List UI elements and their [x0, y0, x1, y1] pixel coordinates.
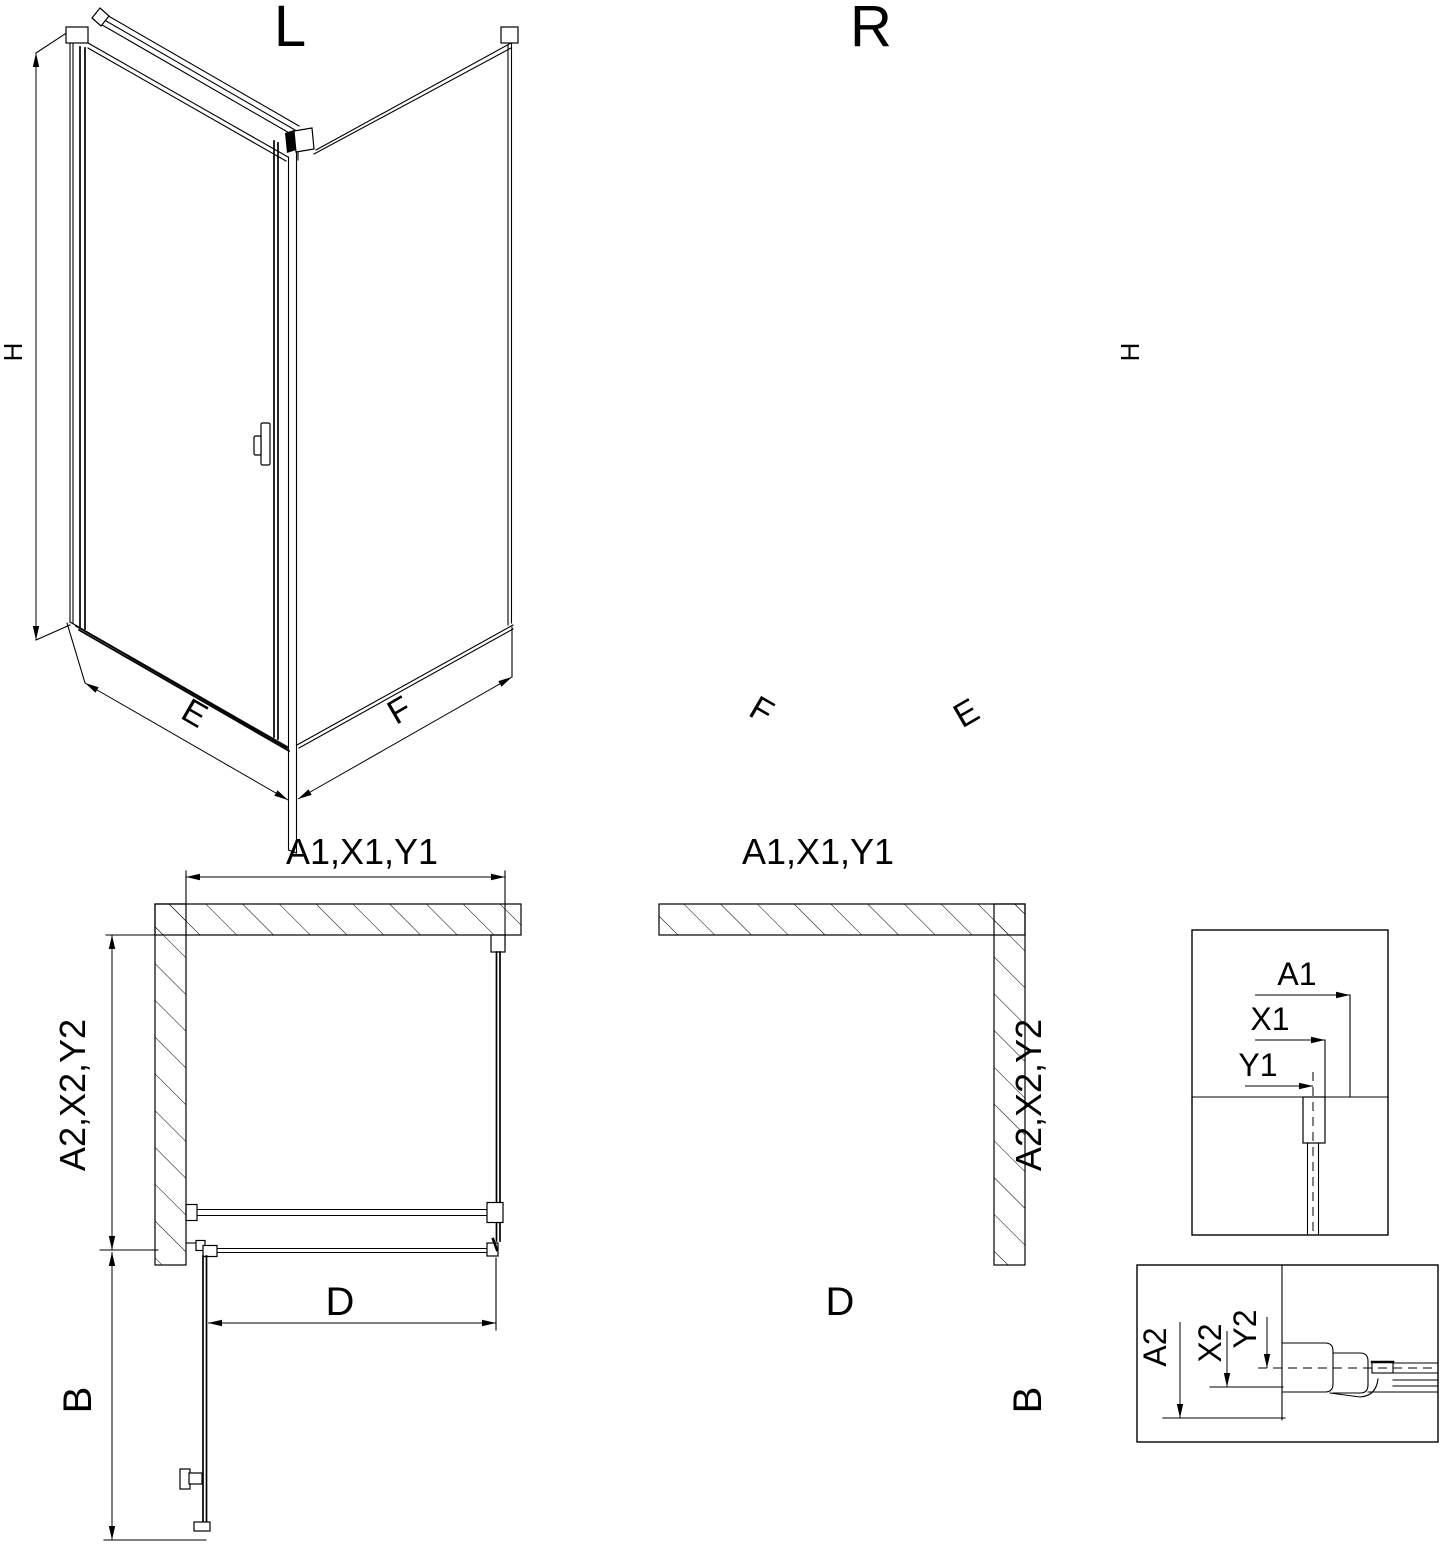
dim-label-door-width-right: D	[826, 1280, 855, 1324]
detail-label-x2: X2	[1192, 1323, 1228, 1362]
dim-label-height-left: H	[0, 343, 28, 362]
dim-label-width-right: A1,X1,Y1	[742, 831, 894, 872]
detail-width-references: A1 X1 Y1	[1192, 930, 1388, 1235]
version-title-left: L	[274, 0, 306, 59]
version-title-right: R	[850, 0, 892, 59]
corner-bracket	[294, 128, 314, 152]
plan-right-top-wall	[659, 904, 1025, 935]
door-handle-grip	[254, 436, 261, 455]
dim-label-panel-side-left: F	[381, 689, 418, 732]
technical-drawing: L R H H E F E F	[0, 0, 1446, 1546]
detail-label-y2: Y2	[1227, 1309, 1263, 1348]
detail-depth-references: A2 X2 Y2	[1137, 1265, 1438, 1442]
dim-label-depth-right: A2,X2,Y2	[1008, 1019, 1049, 1171]
iso-view-left-linework	[36, 8, 518, 853]
dim-label-door-side-right: E	[947, 691, 986, 735]
panel-wall-bracket	[491, 935, 505, 952]
detail-label-a2: A2	[1137, 1327, 1173, 1366]
dim-label-swing-right: B	[1006, 1387, 1050, 1414]
door-bottom-cap	[194, 1522, 210, 1531]
dim-label-panel-side-right: F	[743, 689, 780, 732]
dim-label-swing-left: B	[56, 1387, 100, 1414]
detail-label-x1: X1	[1250, 1001, 1289, 1037]
plan-left-side-wall	[155, 904, 186, 1265]
dim-label-height-right: H	[1115, 343, 1145, 362]
support-bar-bracket	[186, 1205, 197, 1221]
side-panel-cap	[501, 27, 518, 43]
dim-label-depth-left: A2,X2,Y2	[52, 1019, 93, 1171]
door-bottom-rail	[76, 626, 287, 748]
detail-label-y1: Y1	[1238, 1047, 1277, 1083]
detail-hinge-foot	[1330, 1379, 1378, 1397]
door-handle	[261, 423, 270, 465]
dim-label-door-side-left: E	[175, 691, 214, 735]
support-bar-connector	[487, 1203, 503, 1223]
detail-wall-profile	[1303, 1097, 1325, 1143]
wall-profile-cap	[66, 27, 88, 43]
detail-label-a1: A1	[1277, 956, 1316, 992]
plan-left-top-wall	[155, 904, 521, 935]
drawing-sheet: L R H H E F E F	[0, 0, 1446, 1546]
dim-label-width-left: A1,X1,Y1	[286, 831, 438, 872]
support-bar-wall-cap	[92, 8, 109, 26]
dim-label-door-width-left: D	[326, 1280, 355, 1324]
